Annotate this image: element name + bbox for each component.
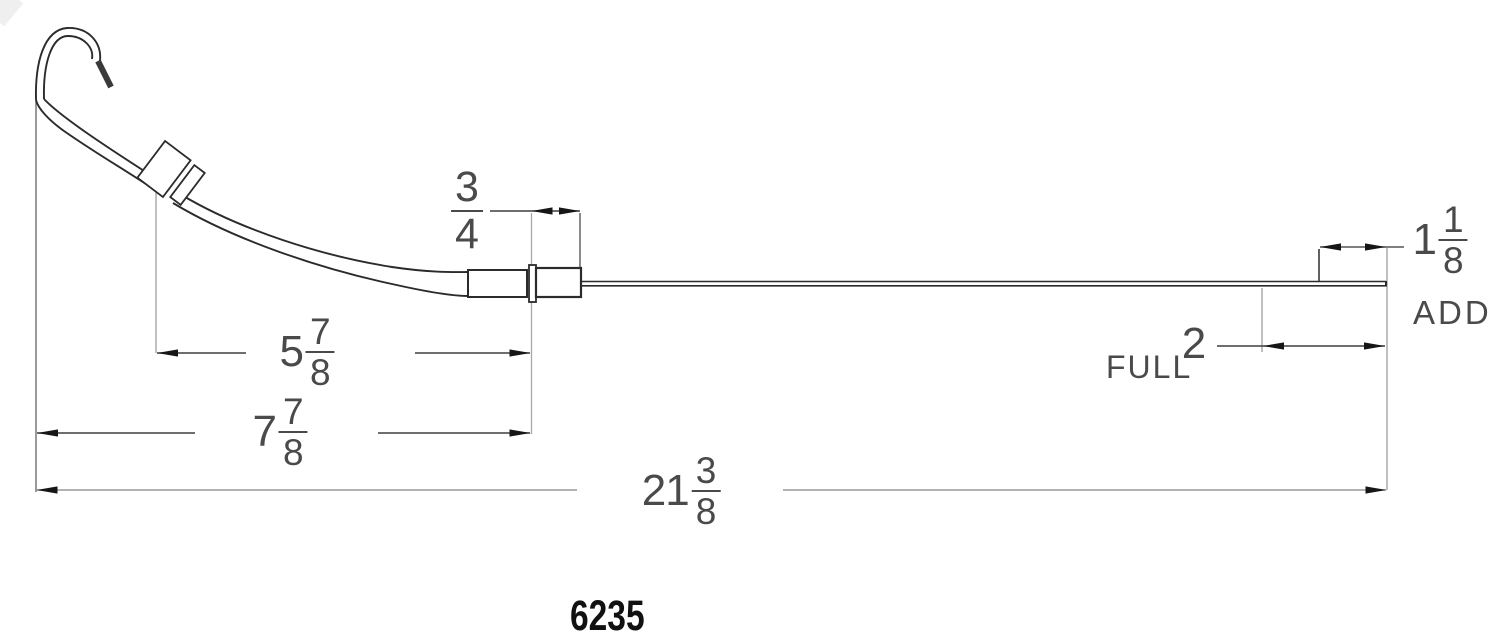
fraction: 1 8 [1439,201,1468,279]
handle-block [536,268,581,297]
fraction-denominator: 4 [455,212,479,256]
fraction: 3 4 [451,166,483,256]
dim-label-3-4: 3 4 [451,166,483,256]
dipstick-part [36,28,1386,302]
fraction-numerator: 7 [279,393,308,433]
arrow-3-4-right [559,207,580,214]
dipstick-hook [36,28,111,100]
tube-top-upper [44,99,152,176]
arrow-2-left [1263,342,1284,349]
fraction-numerator: 3 [451,166,483,212]
arrow-1-1-8-left [1320,243,1341,250]
fraction: 7 8 [306,313,335,391]
fraction-numerator: 1 [1439,201,1468,241]
dipstick-line-art [0,0,1500,643]
arrow-21-3-8-left [37,486,58,493]
tube-collar [137,141,204,205]
arrow-21-3-8-right [1366,486,1387,493]
arrow-1-1-8-right [1365,243,1386,250]
arrow-2-right [1364,342,1385,349]
tube-bottom-upper [36,100,146,184]
dipstick-blade [581,281,1386,287]
whole-number: 5 [279,330,302,374]
fraction-numerator: 3 [692,452,721,492]
whole-number: 7 [252,410,275,454]
whole-number: 21 [642,469,689,513]
dim-label-7-7-8: 7 7 8 [252,393,307,471]
arrow-5-7-8-right [510,349,531,356]
fraction-denominator: 8 [283,433,304,471]
fraction: 7 8 [279,393,308,471]
dim-label-1-1-8: 1 1 8 [1412,201,1467,279]
tube-bottom-lower [173,203,468,296]
arrow-5-7-8-left [157,349,178,356]
whole-number: 1 [1412,218,1435,262]
full-mark-label: FULL [1106,351,1192,383]
part-number: 6235 [570,595,645,638]
dim-label-21-3-8: 21 3 8 [642,452,721,530]
fraction-numerator: 7 [306,313,335,353]
extension-lines [36,100,1387,492]
arrow-7-7-8-left [37,429,58,436]
corner-artifact [0,0,23,26]
hook-inner-curve [44,36,92,99]
fraction-denominator: 8 [310,353,331,391]
hook-outer-curve [36,28,100,100]
fraction: 3 8 [692,452,721,530]
arrow-7-7-8-right [510,429,531,436]
fraction-denominator: 8 [696,492,717,530]
add-mark-label: ADD [1413,296,1492,329]
dipstick-tube [36,99,468,296]
tube-top-lower [180,194,468,272]
dim-label-5-7-8: 5 7 8 [279,313,334,391]
tube-ferrule [468,270,527,297]
arrow-3-4-left [532,207,553,214]
dipstick-drawing-canvas: 3 4 5 7 8 7 7 8 21 3 8 1 1 8 2 [0,0,1500,643]
fraction-denominator: 8 [1443,241,1464,279]
hook-tip [98,61,111,87]
